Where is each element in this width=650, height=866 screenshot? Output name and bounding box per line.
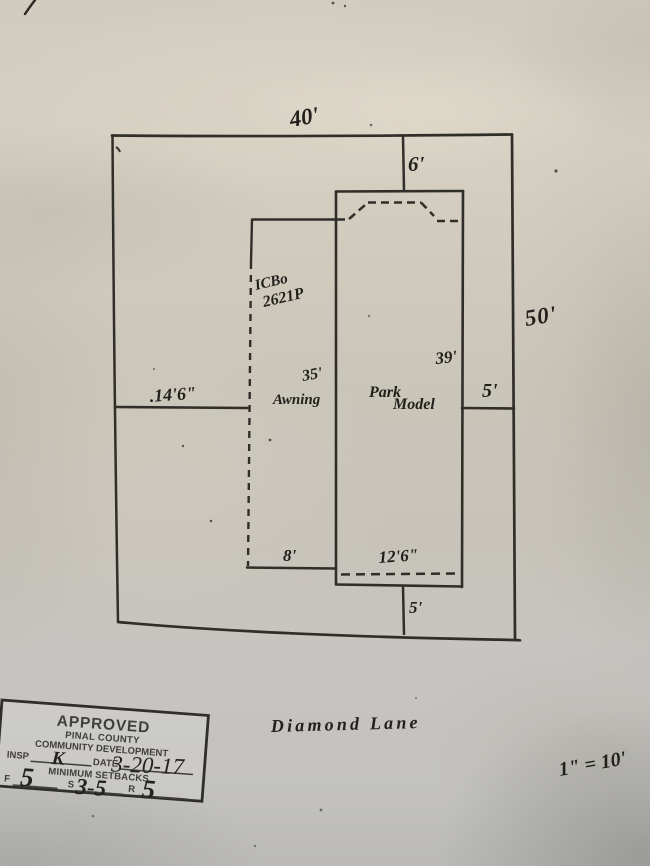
- svg-text:8': 8': [283, 546, 297, 565]
- svg-text:S: S: [67, 779, 74, 790]
- svg-text:39': 39': [433, 347, 458, 368]
- svg-text:40': 40': [287, 102, 321, 132]
- svg-text:3-5: 3-5: [74, 774, 107, 801]
- svg-text:.14'6": .14'6": [149, 383, 197, 406]
- svg-text:5: 5: [141, 774, 157, 805]
- svg-text:12'6": 12'6": [378, 545, 419, 567]
- svg-text:Diamond Lane: Diamond Lane: [270, 712, 421, 736]
- svg-text:Awning: Awning: [272, 392, 321, 408]
- svg-text:5': 5': [482, 380, 498, 402]
- svg-text:Model: Model: [392, 396, 435, 413]
- svg-text:F: F: [4, 773, 11, 784]
- svg-text:5: 5: [19, 762, 35, 793]
- svg-text:INSP: INSP: [6, 750, 30, 763]
- svg-text:50': 50': [523, 301, 559, 331]
- svg-text:R: R: [128, 784, 136, 795]
- svg-text:5': 5': [409, 598, 423, 617]
- svg-text:6': 6': [408, 152, 425, 176]
